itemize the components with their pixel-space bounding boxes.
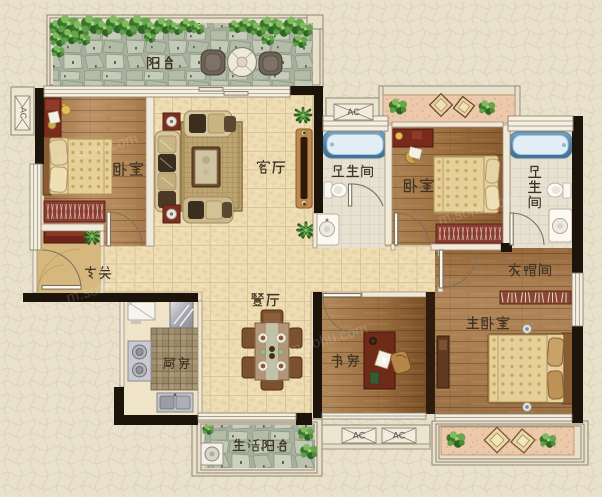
svg-text:AC: AC [353, 430, 366, 440]
svg-text:AC: AC [18, 107, 28, 119]
svg-text:AC: AC [393, 430, 406, 440]
svg-text:AC: AC [347, 107, 360, 117]
